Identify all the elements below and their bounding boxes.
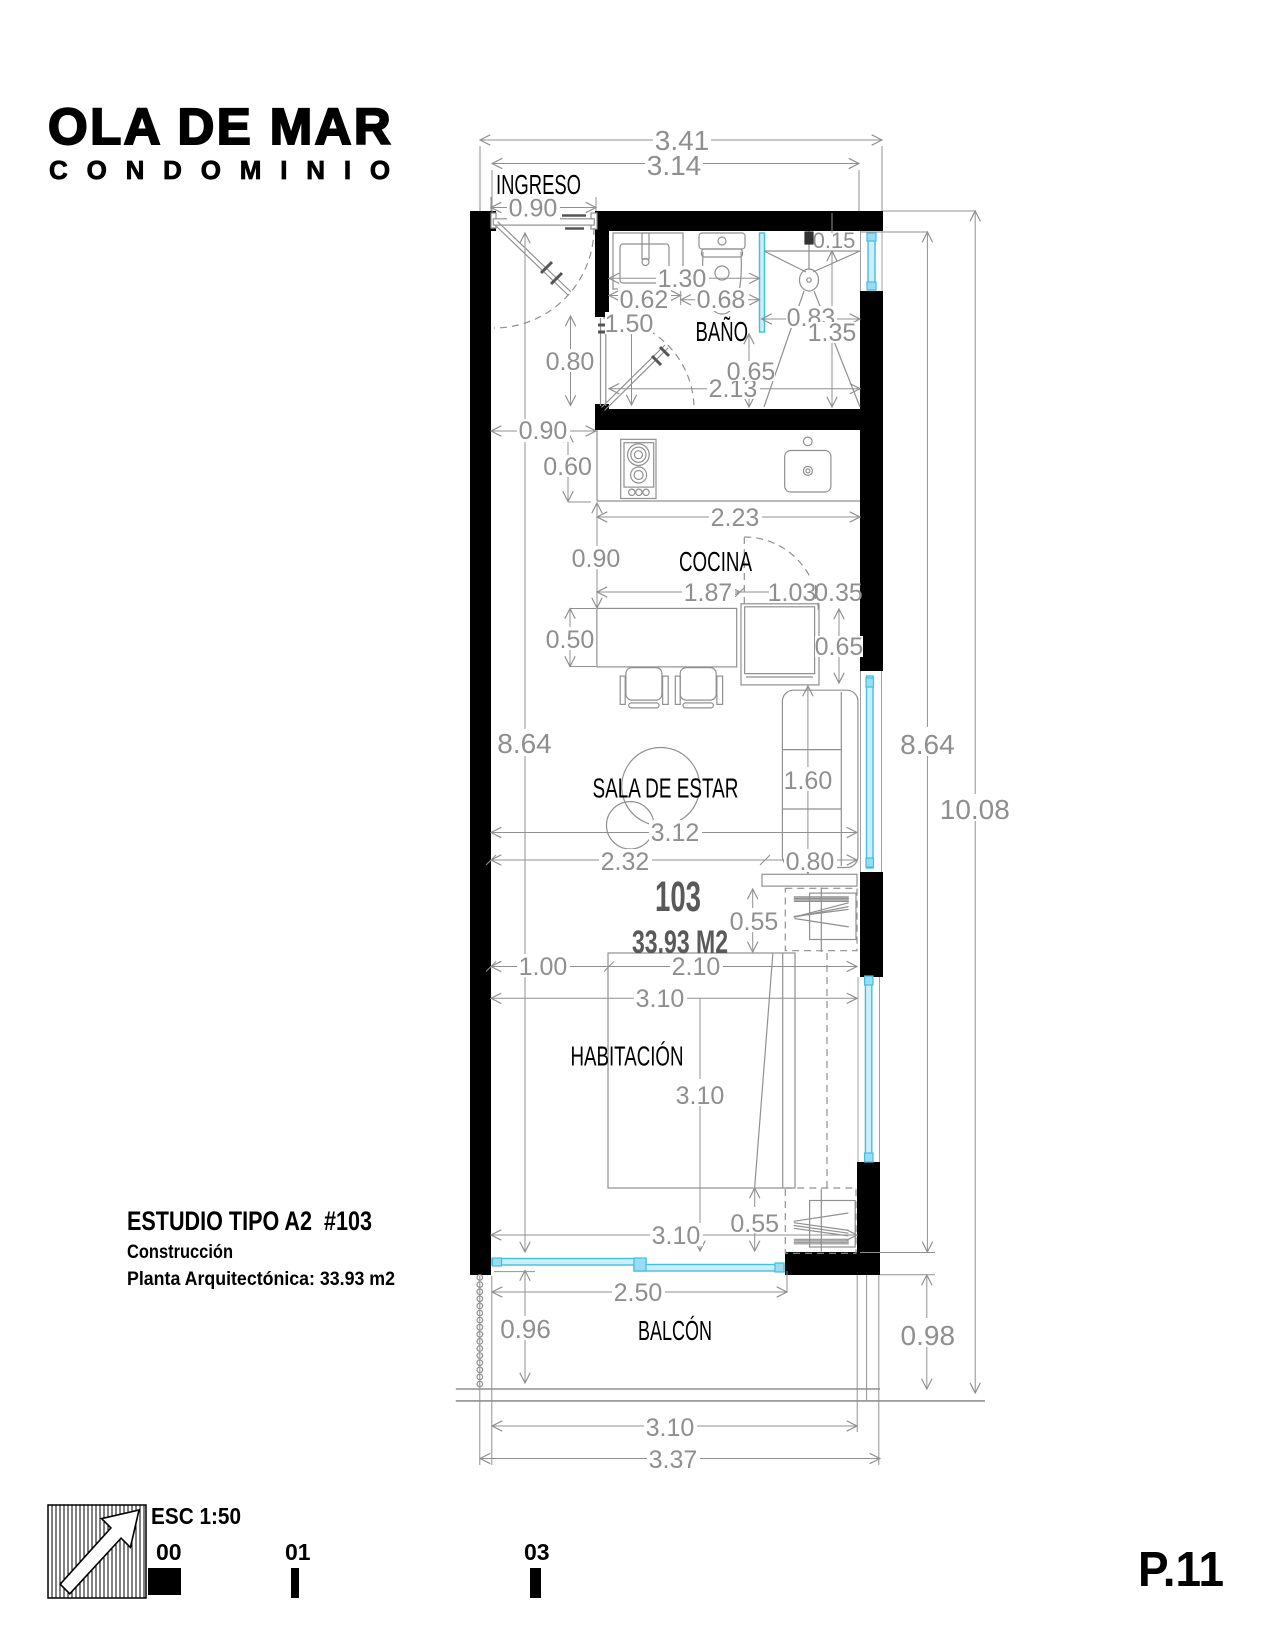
svg-text:CONDOMINIO: CONDOMINIO <box>49 155 409 185</box>
svg-text:103: 103 <box>655 873 701 921</box>
svg-text:8.64: 8.64 <box>900 729 955 760</box>
svg-text:10.08: 10.08 <box>940 794 1010 825</box>
svg-text:SALA DE ESTAR: SALA DE ESTAR <box>593 773 739 804</box>
svg-text:COCINA: COCINA <box>679 546 752 577</box>
svg-text:3.10: 3.10 <box>652 1222 701 1250</box>
svg-text:0.80: 0.80 <box>546 348 595 376</box>
svg-text:3.10: 3.10 <box>646 1414 695 1442</box>
svg-text:0.96: 0.96 <box>500 1314 551 1344</box>
svg-text:P.11: P.11 <box>1138 1543 1224 1597</box>
svg-text:0.65: 0.65 <box>727 358 776 386</box>
svg-text:0.55: 0.55 <box>730 1210 779 1238</box>
svg-text:ESTUDIO TIPO A2 #103: ESTUDIO TIPO A2 #103 <box>127 1206 372 1236</box>
svg-text:3.14: 3.14 <box>647 150 702 181</box>
svg-text:3.10: 3.10 <box>636 985 685 1013</box>
svg-text:1.87: 1.87 <box>684 579 733 607</box>
svg-text:0.55: 0.55 <box>730 908 779 936</box>
svg-text:0.65: 0.65 <box>815 633 864 661</box>
svg-text:1.50: 1.50 <box>605 310 654 338</box>
svg-text:01: 01 <box>285 1539 311 1565</box>
svg-text:0.68: 0.68 <box>697 286 746 314</box>
svg-text:Construcción: Construcción <box>127 1241 233 1263</box>
svg-text:0.35: 0.35 <box>814 579 863 607</box>
svg-text:1.60: 1.60 <box>784 767 833 795</box>
svg-text:0.80: 0.80 <box>786 848 835 876</box>
svg-text:BALCÓN: BALCÓN <box>638 1315 712 1346</box>
svg-text:3.12: 3.12 <box>651 819 700 847</box>
svg-text:00: 00 <box>156 1539 182 1565</box>
svg-text:2.32: 2.32 <box>601 848 650 876</box>
svg-text:1.35: 1.35 <box>808 319 857 347</box>
svg-text:0.50: 0.50 <box>546 626 595 654</box>
svg-text:ESC 1:50: ESC 1:50 <box>151 1503 241 1529</box>
svg-text:2.50: 2.50 <box>614 1279 663 1307</box>
svg-text:03: 03 <box>524 1539 550 1565</box>
svg-text:0.15: 0.15 <box>813 228 856 253</box>
svg-text:2.23: 2.23 <box>711 504 760 532</box>
svg-text:Planta Arquitectónica: 33.93 m: Planta Arquitectónica: 33.93 m2 <box>127 1268 395 1290</box>
svg-text:8.64: 8.64 <box>497 728 552 759</box>
svg-text:0.60: 0.60 <box>543 453 592 481</box>
svg-text:1.00: 1.00 <box>519 953 568 981</box>
svg-text:33.93 M2: 33.93 M2 <box>632 924 728 960</box>
svg-text:BAÑO: BAÑO <box>696 316 749 347</box>
svg-text:OLA DE MAR: OLA DE MAR <box>48 98 393 155</box>
svg-text:0.90: 0.90 <box>519 417 568 445</box>
svg-text:3.37: 3.37 <box>649 1446 698 1474</box>
svg-text:0.90: 0.90 <box>572 545 621 573</box>
svg-text:3.10: 3.10 <box>676 1082 725 1110</box>
svg-text:1.03: 1.03 <box>768 579 817 607</box>
svg-text:INGRESO: INGRESO <box>496 169 581 200</box>
svg-text:HABITACIÓN: HABITACIÓN <box>571 1041 684 1072</box>
svg-text:0.98: 0.98 <box>901 1320 956 1351</box>
